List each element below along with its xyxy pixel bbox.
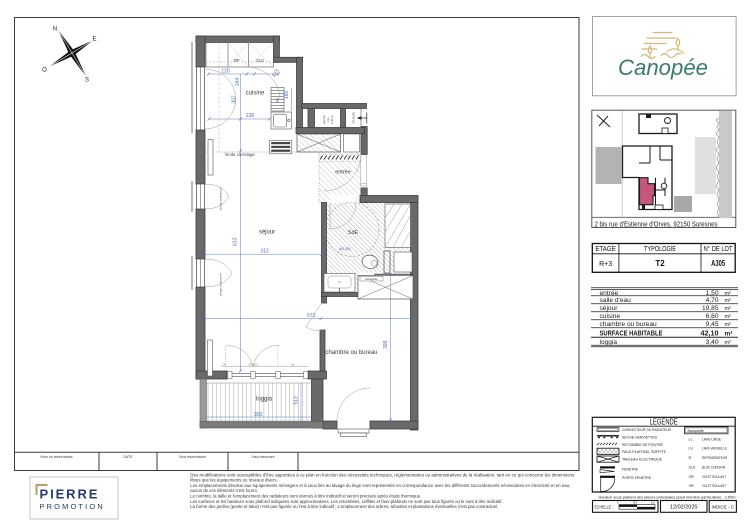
svg-text:LEGENDE: LEGENDE bbox=[650, 416, 678, 426]
svg-text:VOLET ROULANT: VOLET ROULANT bbox=[702, 475, 727, 479]
svg-text:ECHELLE :: ECHELLE : bbox=[595, 505, 614, 511]
svg-text:séjour: séjour bbox=[259, 230, 275, 236]
svg-text:LAVE-LINGE: LAVE-LINGE bbox=[702, 437, 721, 441]
svg-text:2 bis rue d'Estienne d'Orves,: 2 bis rue d'Estienne d'Orves, 92150 Sure… bbox=[595, 220, 718, 229]
svg-text:R+3: R+3 bbox=[599, 261, 612, 268]
svg-text:TABLEAU ELECTRIQUE: TABLEAU ELECTRIQUE bbox=[622, 458, 663, 462]
svg-text:SURFACE HABITABLE: SURFACE HABITABLE bbox=[600, 328, 663, 337]
svg-text:A305: A305 bbox=[711, 259, 725, 268]
svg-text:236: 236 bbox=[246, 113, 255, 119]
svg-text:VR: VR bbox=[689, 484, 695, 488]
svg-text:9,45: 9,45 bbox=[706, 321, 719, 328]
svg-text:E: E bbox=[92, 37, 96, 43]
svg-text:DATE: DATE bbox=[123, 455, 133, 459]
svg-text:m²: m² bbox=[725, 291, 732, 297]
svg-text:m²: m² bbox=[725, 306, 732, 312]
svg-text:INDICE - C: INDICE - C bbox=[712, 504, 735, 509]
svg-text:CONVECTEUR OU RADIATEUR: CONVECTEUR OU RADIATEUR bbox=[622, 428, 671, 432]
svg-text:T2: T2 bbox=[655, 259, 665, 268]
svg-text:VR 40x60: VR 40x60 bbox=[352, 112, 356, 124]
svg-text:fixe: fixe bbox=[291, 363, 295, 366]
svg-text:chambre ou bureau: chambre ou bureau bbox=[600, 321, 658, 328]
svg-text:chambre ou bureau: chambre ou bureau bbox=[325, 350, 377, 356]
svg-text:Le nombre, la taille et l'empl: Le nombre, la taille et l'emplacement de… bbox=[190, 494, 421, 499]
svg-text:limite carrelage: limite carrelage bbox=[225, 152, 255, 157]
svg-text:entrée: entrée bbox=[335, 170, 351, 176]
svg-text:244: 244 bbox=[235, 77, 241, 86]
svg-text:SdE: SdE bbox=[348, 230, 359, 236]
svg-text:Visa réservant: Visa réservant bbox=[252, 455, 275, 459]
svg-text:m²: m² bbox=[725, 314, 732, 320]
svg-text:SECHE-SERVIETTES: SECHE-SERVIETTES bbox=[622, 435, 658, 439]
svg-text:R: R bbox=[689, 456, 692, 460]
svg-text:123: 123 bbox=[271, 68, 281, 78]
svg-text:CUI: CUI bbox=[256, 58, 263, 63]
svg-text:Les surfaces et les hauteurs s: Les surfaces et les hauteurs sous plafon… bbox=[190, 499, 502, 504]
svg-text:PORTE-FENETRE: PORTE-FENETRE bbox=[622, 476, 651, 480]
svg-text:cuisine: cuisine bbox=[246, 90, 265, 96]
svg-text:LL: LL bbox=[689, 437, 693, 441]
svg-text:4,70: 4,70 bbox=[706, 297, 719, 304]
svg-text:VR: VR bbox=[689, 475, 695, 479]
svg-text:A1: A1 bbox=[276, 98, 280, 102]
svg-text:cuis.: cuis. bbox=[326, 116, 330, 122]
svg-text:m²: m² bbox=[725, 322, 732, 328]
svg-text:Canopée: Canopée bbox=[618, 55, 708, 80]
svg-text:240x215: 240x215 bbox=[248, 363, 258, 366]
svg-text:FAUX-PLAFOND, SOFFITE: FAUX-PLAFOND, SOFFITE bbox=[622, 450, 667, 454]
svg-text:0,5: 0,5 bbox=[633, 501, 637, 505]
svg-text:Hauteur sous plafond des pièce: Hauteur sous plafond des pièces principa… bbox=[599, 495, 737, 500]
svg-text:O: O bbox=[42, 68, 47, 74]
svg-text:m²: m² bbox=[725, 298, 732, 304]
svg-text:ETAGE: ETAGE bbox=[595, 246, 616, 253]
svg-text:VR: VR bbox=[222, 363, 226, 366]
svg-text:6,60: 6,60 bbox=[706, 313, 719, 320]
svg-text:1,50: 1,50 bbox=[706, 290, 719, 297]
svg-text:TYPOLOGIE: TYPOLOGIE bbox=[644, 246, 676, 253]
svg-text:salle d'eau: salle d'eau bbox=[600, 297, 632, 304]
svg-text:LAVE-VAISSELLE: LAVE-VAISSELLE bbox=[702, 447, 727, 451]
svg-text:FENETRE: FENETRE bbox=[622, 468, 638, 472]
svg-text:REFRIGERATEUR: REFRIGERATEUR bbox=[702, 456, 727, 460]
svg-text:LV: LV bbox=[689, 447, 694, 451]
svg-text:513: 513 bbox=[294, 396, 300, 405]
svg-text:(Ø1,50): (Ø1,50) bbox=[339, 247, 351, 251]
svg-text:séjour: séjour bbox=[600, 305, 619, 312]
svg-text:571: 571 bbox=[307, 313, 316, 319]
svg-text:Nom du réservataire: Nom du réservataire bbox=[40, 455, 73, 459]
svg-text:La forme des jardins (pente et: La forme des jardins (pente et talus) n'… bbox=[190, 504, 498, 509]
svg-text:1m: 1m bbox=[651, 501, 656, 505]
svg-text:m²: m² bbox=[725, 330, 734, 337]
svg-text:loggia: loggia bbox=[600, 339, 618, 346]
svg-text:3,40: 3,40 bbox=[706, 339, 719, 346]
svg-text:399: 399 bbox=[383, 340, 389, 349]
svg-text:12/02/2025: 12/02/2025 bbox=[670, 505, 698, 511]
svg-text:42,10: 42,10 bbox=[701, 328, 719, 337]
svg-text:placard: placard bbox=[322, 115, 326, 124]
svg-text:307: 307 bbox=[232, 95, 238, 104]
svg-text:313: 313 bbox=[260, 249, 269, 255]
svg-text:PROMOTION: PROMOTION bbox=[40, 502, 105, 511]
svg-text:m²: m² bbox=[725, 340, 732, 346]
svg-text:aucun de ces éléments n'est fo: aucun de ces éléments n'est fourni. bbox=[190, 488, 257, 493]
svg-text:entrée: entrée bbox=[600, 290, 619, 297]
svg-text:0,36 m²: 0,36 m² bbox=[330, 115, 334, 124]
svg-text:N° DE LOT: N° DE LOT bbox=[704, 245, 734, 253]
svg-text:613: 613 bbox=[233, 237, 239, 246]
svg-text:Banquette: Banquette bbox=[688, 429, 704, 433]
svg-text:cuisine: cuisine bbox=[600, 313, 621, 320]
svg-text:RETOMBEE DE POUTRE: RETOMBEE DE POUTRE bbox=[622, 443, 664, 447]
svg-text:19,85: 19,85 bbox=[702, 305, 719, 312]
svg-text:banquette: banquette bbox=[365, 277, 378, 281]
svg-text:libres que les équipements ou: libres que les équipements ou réseaux di… bbox=[190, 478, 277, 483]
svg-text:BLOC CUISSON: BLOC CUISSON bbox=[702, 465, 725, 469]
svg-text:CUI: CUI bbox=[689, 465, 696, 469]
svg-text:vitrage opalescent: vitrage opalescent bbox=[219, 187, 223, 210]
svg-text:Les emplacements dévolus aux é: Les emplacements dévolus aux équipements… bbox=[190, 483, 570, 488]
svg-text:Des modifications sont suscept: Des modifications sont susceptibles d'êt… bbox=[190, 472, 574, 477]
svg-text:300: 300 bbox=[254, 412, 263, 418]
svg-text:S: S bbox=[85, 78, 89, 84]
svg-text:loggia: loggia bbox=[256, 397, 273, 403]
svg-text:VOLET ROULANT: VOLET ROULANT bbox=[702, 484, 727, 488]
svg-text:vitrage opalescent: vitrage opalescent bbox=[219, 273, 223, 296]
svg-text:180: 180 bbox=[284, 91, 290, 100]
svg-text:RF: RF bbox=[234, 58, 240, 63]
svg-text:Visa réservataire: Visa réservataire bbox=[179, 455, 206, 459]
svg-text:120: 120 bbox=[221, 69, 230, 75]
svg-text:PIERRE: PIERRE bbox=[40, 487, 100, 502]
svg-text:N: N bbox=[53, 27, 57, 33]
